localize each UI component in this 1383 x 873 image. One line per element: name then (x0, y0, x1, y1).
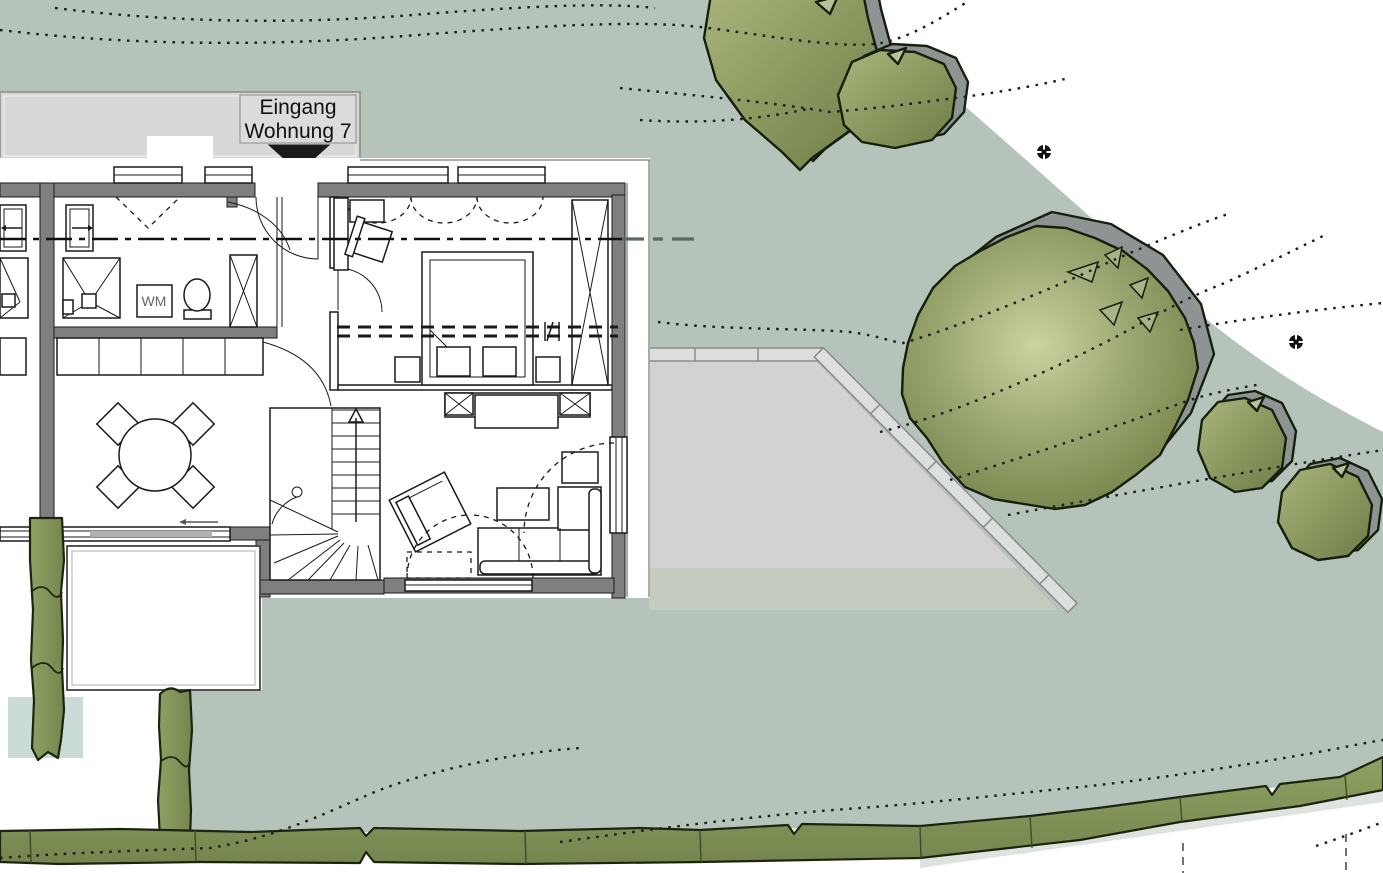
sliding-door-leaf (90, 531, 212, 537)
kerb-top (637, 348, 822, 361)
wall-top-right (318, 183, 625, 197)
hedge-center-vertical (158, 688, 192, 838)
wardrobe (572, 200, 608, 385)
paved-lower-fade (649, 568, 1058, 610)
dining-table (119, 419, 191, 491)
toilet (184, 279, 211, 319)
wall-right-upper (612, 195, 625, 437)
survey-marker-icon-1 (1035, 143, 1053, 161)
wall-bedroom-left-lower (330, 312, 338, 390)
duct-shaft (230, 255, 257, 327)
stairs (270, 408, 380, 580)
shower (63, 258, 120, 318)
bed (422, 252, 533, 385)
survey-marker-icon-2 (1287, 333, 1305, 351)
garden-terrace (67, 546, 260, 690)
nightstand-left (395, 357, 420, 382)
french-window-right (610, 437, 627, 533)
neighbour-apartment (0, 205, 28, 375)
entrance-label-line1: Eingang (259, 96, 336, 119)
side-table (562, 452, 598, 483)
site-plan-svg: Eingang Wohnung 7 (0, 0, 1383, 873)
wall-bathroom (54, 327, 277, 338)
entrance-label-line2: Wohnung 7 (244, 120, 351, 143)
nightstand-right (536, 357, 560, 382)
coffee-table (497, 488, 549, 520)
wall-top-left (0, 183, 255, 197)
hedge-left-vertical (30, 518, 64, 760)
party-wall (40, 183, 54, 545)
washing-machine-label: WM (142, 293, 167, 309)
site-plan: Eingang Wohnung 7 (0, 0, 1383, 873)
washing-machine: WM (137, 285, 172, 317)
